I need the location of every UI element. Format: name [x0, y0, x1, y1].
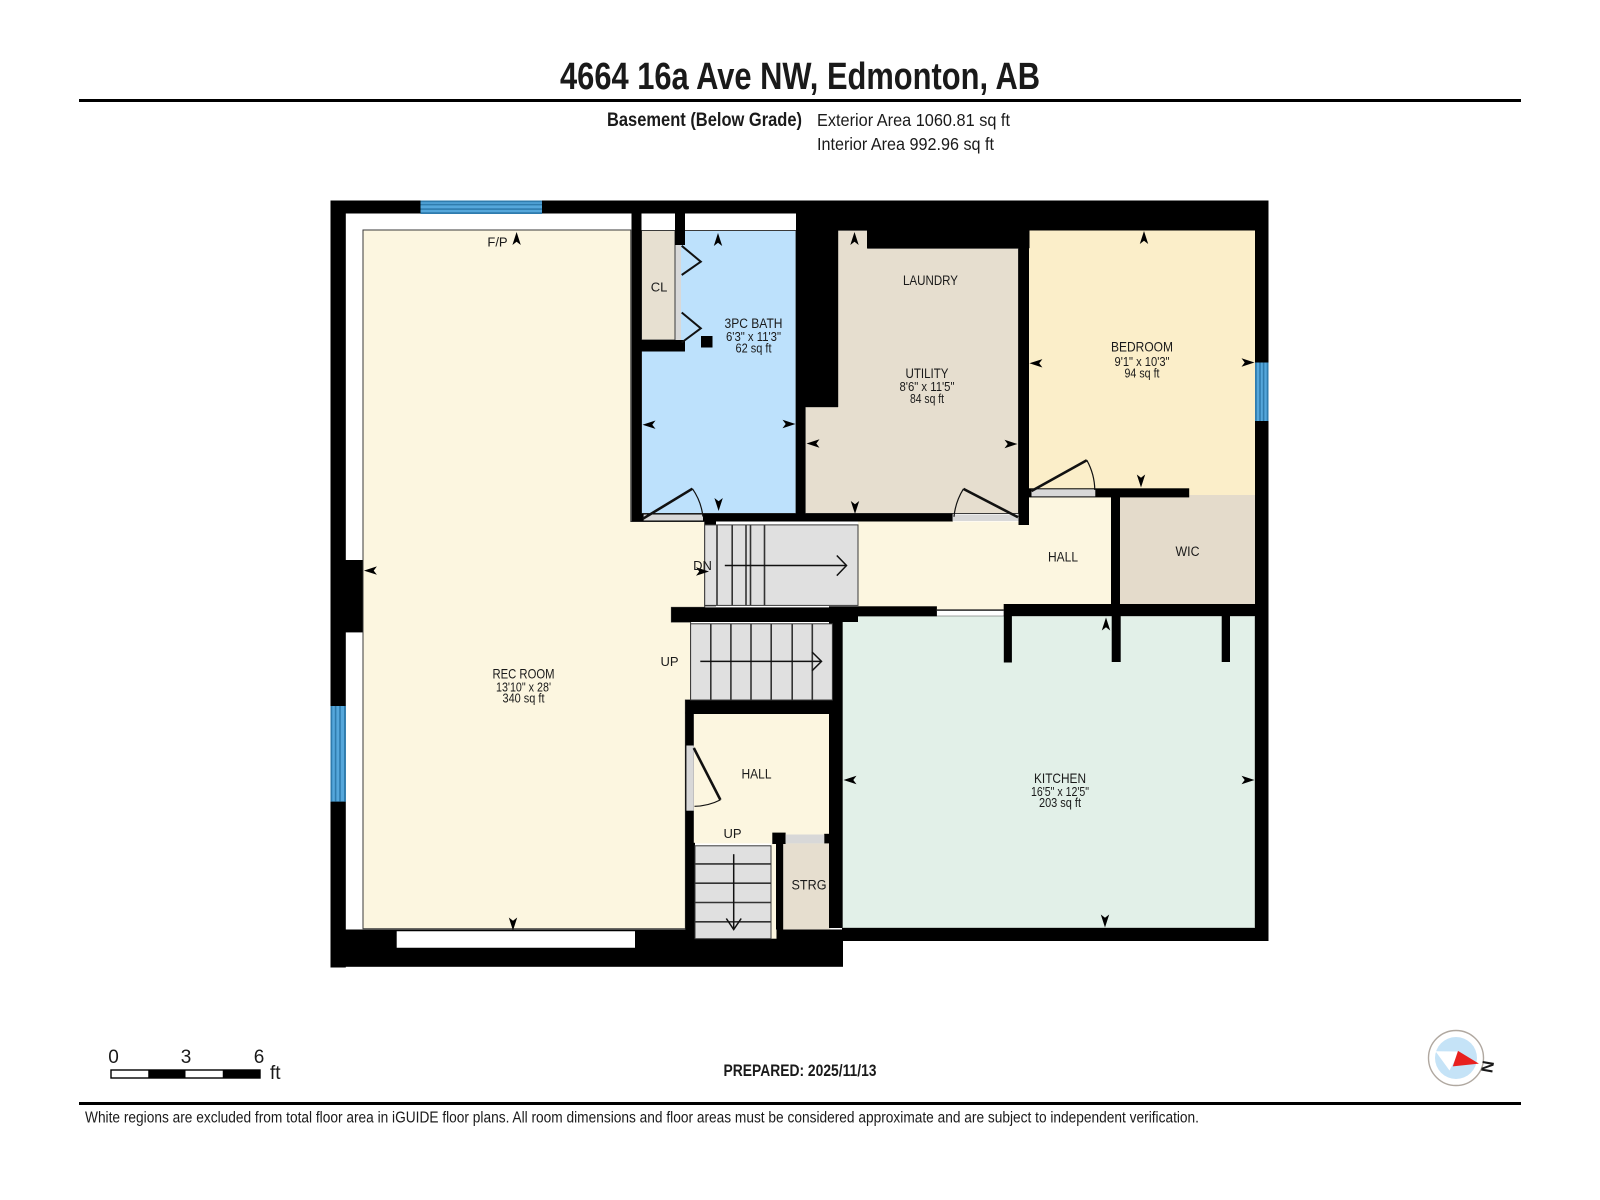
svg-text:4664 16a Ave NW, Edmonton, AB: 4664 16a Ave NW, Edmonton, AB: [560, 56, 1040, 98]
svg-text:White regions are excluded fro: White regions are excluded from total fl…: [85, 1110, 1199, 1127]
svg-text:HALL: HALL: [1048, 549, 1078, 565]
svg-text:94 sq ft: 94 sq ft: [1125, 366, 1160, 381]
svg-text:0: 0: [108, 1047, 119, 1068]
svg-text:6: 6: [254, 1047, 265, 1068]
svg-text:UP: UP: [723, 826, 741, 841]
svg-text:ft: ft: [270, 1063, 281, 1084]
svg-text:PREPARED: 2025/11/13: PREPARED: 2025/11/13: [724, 1062, 877, 1080]
svg-text:BEDROOM: BEDROOM: [1111, 339, 1173, 355]
svg-text:F/P: F/P: [487, 235, 507, 250]
svg-text:62 sq ft: 62 sq ft: [736, 341, 772, 356]
svg-text:LAUNDRY: LAUNDRY: [903, 272, 959, 288]
svg-text:Exterior Area 1060.81 sq ft: Exterior Area 1060.81 sq ft: [817, 110, 1010, 130]
svg-text:203 sq ft: 203 sq ft: [1039, 795, 1081, 810]
svg-text:Interior Area 992.96 sq ft: Interior Area 992.96 sq ft: [817, 134, 994, 154]
svg-text:Basement (Below Grade): Basement (Below Grade): [607, 109, 802, 131]
svg-text:84 sq ft: 84 sq ft: [910, 391, 944, 406]
svg-text:WIC: WIC: [1176, 544, 1200, 559]
svg-text:3: 3: [181, 1047, 192, 1068]
svg-text:UP: UP: [660, 654, 678, 669]
svg-text:CL: CL: [651, 280, 668, 295]
svg-text:340 sq ft: 340 sq ft: [503, 691, 545, 706]
svg-text:STRG: STRG: [792, 878, 827, 893]
svg-text:DN: DN: [693, 558, 712, 573]
svg-text:HALL: HALL: [742, 766, 772, 782]
